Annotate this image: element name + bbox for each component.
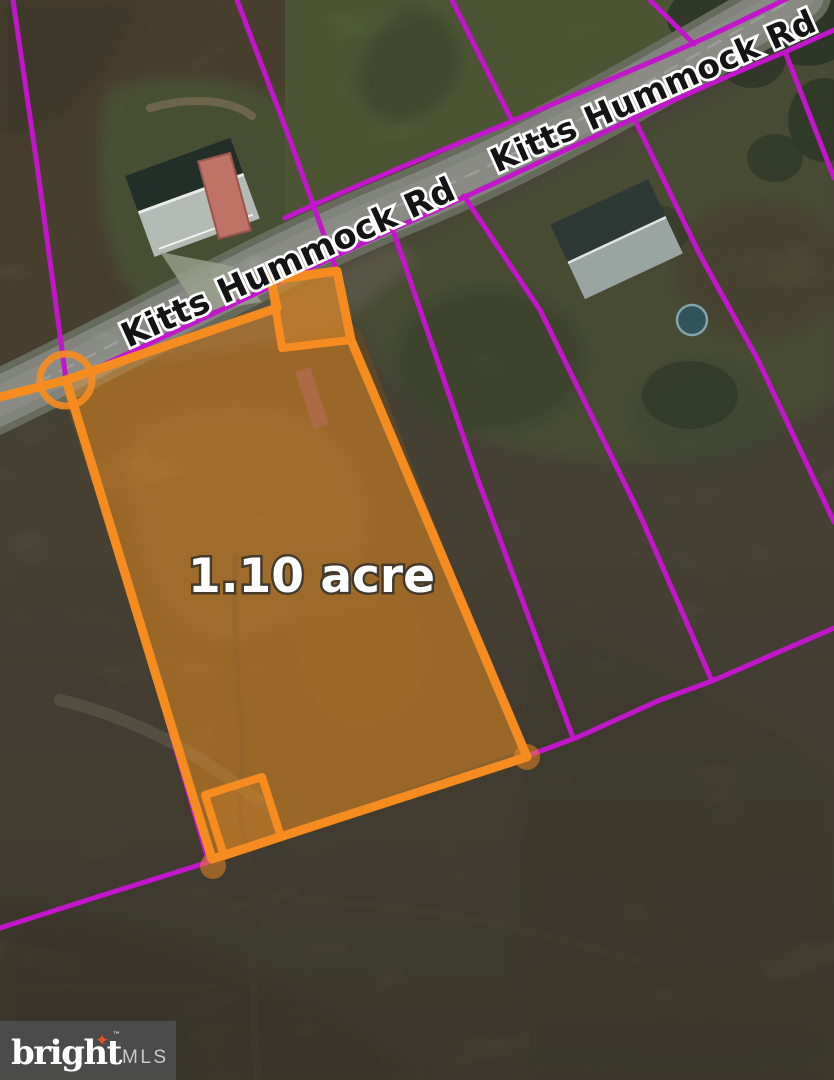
parcel-map-image: Kitts Hummock Rd Kitts Hummock Rd 1.10 a… (0, 0, 834, 1080)
mls-listing-photo: Kitts Hummock Rd Kitts Hummock Rd 1.10 a… (0, 0, 834, 1080)
watermark-mls-text: MLS (122, 1047, 169, 1068)
star-icon: ✦ (95, 1031, 109, 1051)
trademark-symbol: ™ (112, 1031, 121, 1041)
parcel-inner-square (205, 777, 281, 856)
brightmls-watermark: bright ✦ ™ MLS (0, 1021, 176, 1080)
parcel-area-label: 1.10 acre (188, 549, 435, 604)
swimming-pool (677, 305, 707, 335)
